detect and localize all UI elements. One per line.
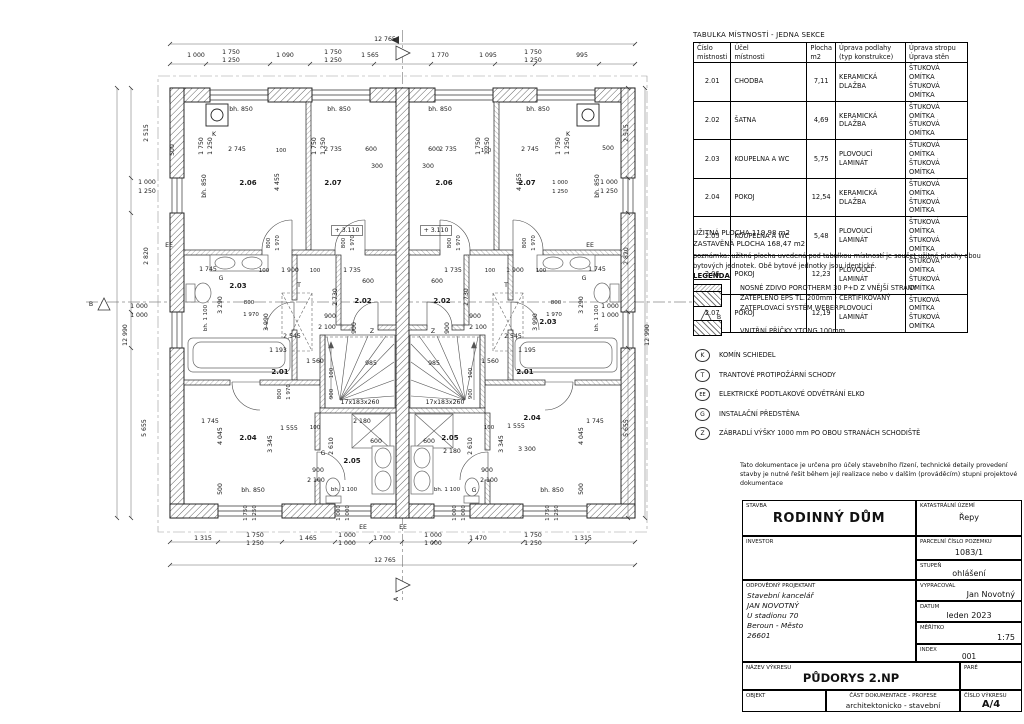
plan-label: 100 [329,367,335,378]
plan-label: T [503,282,508,289]
plan-label: 600 [428,146,440,153]
plan-label: 2 610 [467,437,474,455]
plan-label: 2.02 [433,297,450,305]
plan-label: 2 745 [521,146,539,153]
cast-value: architektonicko - stavební [827,701,959,710]
plan-label: 1 193 [269,347,287,354]
plan-label: 2.05 [343,457,360,465]
table-cell: 5,75 [807,140,836,179]
plan-label: 2.03 [539,318,556,326]
table-cell: 7,11 [807,63,836,102]
plan-label: 1 000 [424,540,442,547]
plan-label: 1 745 [588,266,606,273]
plan-label: 995 [576,52,588,59]
plan-label: 1 745 [199,266,217,273]
plan-label: 1 970 [275,235,281,251]
table-cell: ŠTUKOVÁ OMÍTKA ŠTUKOVÁ OMÍTKA [906,63,968,102]
legend-symbol-z-icon: Z [695,427,710,440]
plan-label: EE [165,242,173,249]
plan-label: 2 820 [143,247,150,265]
plan-label: G [219,275,224,282]
plan-label: bh. 850 [327,106,351,113]
plan-label: 100 [484,425,495,431]
plan-label: 1 750 [246,532,264,539]
titleblock-cell-parcela: PARCELNÍ ČÍSLO POZEMKU 1083/1 [916,536,1022,560]
plan-label: 1 560 [306,358,324,365]
plan-label: 1 750 [524,49,542,56]
plan-label: Z [370,328,374,335]
plan-label: 12 765 [374,557,396,564]
plan-label: 2 545 [504,333,522,340]
plan-label: 1 700 [373,535,391,542]
plan-label: 2 180 [353,418,371,425]
room-table-header-cell: Účel místnosti [731,43,807,63]
plan-label: 900 [481,467,493,474]
plan-label: 2.05 [441,434,458,442]
plan-label: 500 [578,483,585,495]
plan-label: 12 765 [374,36,396,43]
plan-label: 300 [422,163,434,170]
table-cell: 4,69 [807,101,836,140]
room-table-title: TABULKA MÍSTNOSTÍ - JEDNA SEKCE [693,31,825,39]
plan-label: 1 250 [222,57,240,64]
plan-label: 1 000 [601,312,619,319]
table-cell: KERAMICKÁ DLAŽBA [836,178,906,217]
plan-label: 1 250 [252,505,258,521]
table-cell: KERAMICKÁ DLAŽBA [836,101,906,140]
plan-label: 3 300 [518,446,536,453]
titleblock-cell-meritko: MĚŘÍTKO 1:75 [916,622,1022,644]
titleblock-cell-nazev: NÁZEV VÝKRESU PŮDORYS 2.NP [742,662,960,690]
plan-label: 1 315 [194,535,212,542]
table-cell: POKOJ [731,178,807,217]
plan-label: 100 [468,367,474,378]
plan-label: 2 730 [463,288,470,306]
plan-label: 1 000 [552,180,568,186]
plan-label: 2.01 [271,368,288,376]
plan-label: 900 [351,322,358,334]
plan-label: B [89,301,93,308]
plan-label: 2.03 [229,282,246,290]
loadbearing-wall-swatch [693,284,722,307]
plan-label: 1 095 [479,52,497,59]
titleblock-cell-vypracoval: VYPRACOVAL Jan Novotný [916,580,1022,601]
plan-label: 1 970 [546,312,562,318]
plan-label: 1 250 [552,189,568,195]
title-block: STAVBA RODINNÝ DŮM KATASTRÁLNÍ ÚZEMÍ Řep… [742,500,1022,712]
plan-label: + 3.110 [424,227,449,234]
plan-label: 1 000 [187,52,205,59]
plan-label: Z [431,328,435,335]
table-cell: ŠTUKOVÁ OMÍTKA ŠTUKOVÁ OMÍTKA [906,101,968,140]
plan-label: 1 315 [574,535,592,542]
legend-symbol-t-icon: T [695,369,710,382]
table-row: 2.03KOUPELNA A WC5,75PLOVOUCÍ LAMINÁTŠTU… [694,140,968,179]
plan-label: 1 000 [345,505,351,521]
plan-label: 800 [522,237,528,248]
plan-label: 900 [469,313,481,320]
room-table-header: Číslo místnostiÚčel místnostiPlocha m2Úp… [694,43,968,63]
plan-label: 2 100 [480,477,498,484]
drawing-sheet: { "table": { "title": "TABULKA MÍSTNOSTÍ… [0,0,1024,724]
plan-label: 1 250 [324,57,342,64]
table-cell: 2.01 [694,63,731,102]
plan-label: 1 250 [564,137,571,155]
party-wall [396,88,409,518]
plan-label: 800 [244,300,255,306]
plan-label: 300 [371,163,383,170]
titleblock-cell-cast: ČÁST DOKUMENTACE - PROFESE architektonic… [826,690,960,712]
plan-label: 3 290 [217,296,224,314]
plan-label: 500 [602,145,614,152]
table-cell: ŠTUKOVÁ OMÍTKA ŠTUKOVÁ OMÍTKA [906,140,968,179]
table-cell: PLOVOUCÍ LAMINÁT [836,217,906,256]
plan-label: 3 990 [532,313,539,331]
plan-label: 1 555 [507,423,525,430]
index-value: 001 [917,652,1021,661]
datum-label: DATUM [920,604,939,610]
plan-label: 4 045 [578,427,585,445]
plan-label: 1 970 [531,235,537,251]
table-cell: CHODBA [731,63,807,102]
plan-label: 1 970 [286,384,292,400]
stavba-label: STAVBA [746,503,767,509]
plan-label: 1 000 [138,179,156,186]
plan-label: bh. 850 [241,487,265,494]
legend-symbol-text: ZÁBRADLÍ VÝŠKY 1000 mm PO OBOU STRANÁCH … [719,429,920,437]
plan-label: 100 [259,268,270,274]
plan-label: bh. 850 [526,106,550,113]
plan-label: 1 000 [424,532,442,539]
objekt-label: OBJEKT [746,693,765,699]
plan-label: 2.07 [518,179,535,187]
table-cell: ŠTUKOVÁ OMÍTKA ŠTUKOVÁ OMÍTKA [906,217,968,256]
plan-label: 2 735 [439,146,457,153]
room-table-header-cell: Úprava podlahy (typ konstrukce) [836,43,906,63]
built-area: ZASTAVĚNÁ PLOCHA 168,47 m2 [693,239,805,250]
plan-label: 2.02 [354,297,371,305]
plan-label: 1 000 [452,505,458,521]
vypracoval-value: Jan Novotný [967,590,1015,599]
stavba-value: RODINNÝ DŮM [743,511,915,526]
plan-label: 2.04 [523,414,540,422]
plan-label: 100 [276,148,287,154]
plan-label: 1 000 [130,312,148,319]
projektant-value: Stavební kancelář JAN NOVOTNÝ U stadionu… [747,591,915,641]
plan-label: 2 515 [623,124,630,142]
plan-label: 1 250 [524,540,542,547]
table-cell: KERAMICKÁ DLAŽBA [836,63,906,102]
plan-label: 1 970 [350,235,356,251]
titleblock-cell-stupen: STUPEŇ ohlášení [916,560,1022,580]
plan-label: 2 545 [283,333,301,340]
plan-label: 3 990 [263,313,270,331]
plan-label: 2.06 [435,179,452,187]
datum-value: leden 2023 [917,611,1021,620]
plan-label: 1 900 [281,267,299,274]
table-cell: ŠTUKOVÁ OMÍTKA ŠTUKOVÁ OMÍTKA [906,178,968,217]
plan-label: 1 560 [481,358,499,365]
titleblock-cell-datum: DATUM leden 2023 [916,601,1022,622]
legend-symbol-g-icon: G [695,408,710,421]
note-text: poznámka: užitná plocha uvedená pod tabu… [693,252,981,271]
legend-wall1-label: NOSNÉ ZDIVO POROTHERM 30 P+D Z VNĚJŠÍ ST… [740,284,917,314]
plan-label: 1 465 [299,535,317,542]
plan-label: 1 750 [198,137,205,155]
plan-label: 3 290 [578,296,585,314]
plan-label: 2 610 [328,437,335,455]
meritko-value: 1:75 [997,633,1015,642]
plan-label: 100 [485,268,496,274]
meritko-label: MĚŘÍTKO [920,625,944,631]
plan-label: 600 [365,146,377,153]
plan-label: T [296,282,301,289]
plan-label: 900 [312,467,324,474]
plan-label: EE [399,524,407,531]
plan-label: 2 100 [307,477,325,484]
plan-label: 800 [277,388,283,399]
plan-label: 1 750 [545,505,551,521]
plan-label: 1 000 [338,540,356,547]
plan-label: 800 [447,237,453,248]
titleblock-cell-objekt: OBJEKT [742,690,826,712]
table-cell: 2.04 [694,178,731,217]
plan-label: bh. 1 100 [203,304,209,331]
legend-symbol-row: ZZÁBRADLÍ VÝŠKY 1000 mm PO OBOU STRANÁCH… [693,425,1013,445]
plan-label: bh. 1 100 [434,487,461,493]
legend-symbol-row: KKOMÍN SCHIEDEL [693,347,1013,367]
plan-label: 1 250 [207,137,214,155]
plan-label: 1 250 [600,188,618,195]
plan-label: 800 [341,237,347,248]
legend-wall2-label: VNITŘNÍ PŘÍČKY YTONG 100mm [740,327,845,335]
plan-label: 1 250 [524,57,542,64]
plan-label: 4 455 [274,173,281,191]
plan-label: 800 [551,300,562,306]
plan-label: EE [359,524,367,531]
plan-label: 1 195 [518,347,536,354]
table-cell: 5,48 [807,217,836,256]
plan-label: 600 [370,438,382,445]
investor-label: INVESTOR [746,539,773,545]
plan-label: 17x183x260 [341,399,380,406]
parcela-value: 1083/1 [917,548,1021,557]
plan-label: 500 [217,483,224,495]
plan-label: 1 750 [222,49,240,56]
area-summary: UŽITNÁ PLOCHA 119,98 m2 ZASTAVĚNÁ PLOCHA… [693,228,805,249]
table-cell: ŠATNA [731,101,807,140]
legend-symbol-text: ELEKTRICKÉ PODTLAKOVÉ ODVĚTRÁNÍ ELKO [719,390,865,398]
titleblock-cell-projektant: ODPOVĚDNÝ PROJEKTANT Stavební kancelář J… [742,580,916,662]
plan-label: 1 000 [336,505,342,521]
titleblock-cell-stavba: STAVBA RODINNÝ DŮM [742,500,916,536]
plan-label: EE [586,242,594,249]
plan-label: 600 [362,278,374,285]
plan-label: 1 750 [555,137,562,155]
room-table-header-cell: Úprava stropu Úprava stěn [906,43,968,63]
ku-label: KATASTRÁLNÍ ÚZEMÍ [920,503,975,509]
plan-label: 2 180 [443,448,461,455]
table-row: 2.01CHODBA7,11KERAMICKÁ DLAŽBAŠTUKOVÁ OM… [694,63,968,102]
plan-label: 2 515 [143,124,150,142]
plan-label: 1 000 [130,303,148,310]
plan-label: 1 745 [586,418,604,425]
table-row: 2.04POKOJ12,54KERAMICKÁ DLAŽBAŠTUKOVÁ OM… [694,178,968,217]
plan-label: 1 000 [461,505,467,521]
plan-label: 1 090 [276,52,294,59]
plan-label: 100 [310,425,321,431]
plan-label: 3 345 [498,435,505,453]
plan-label: bh. 850 [229,106,253,113]
plan-label: 2.04 [239,434,256,442]
legend-symbol-row: TTRANTOVÉ PROTIPOŽÁRNÍ SCHODY [693,367,1013,387]
plan-label: bh. 850 [540,487,564,494]
legend-symbol-row: GINSTALAČNÍ PŘEDSTĚNA [693,406,1013,426]
plan-label: A [393,596,400,601]
plan-label: 100 [481,148,492,154]
parcela-label: PARCELNÍ ČÍSLO POZEMKU [920,539,992,545]
pare-label: PARÉ [964,665,978,671]
plan-label: 2.01 [516,368,533,376]
plan-label: 2 820 [623,247,630,265]
plan-label: 2 730 [332,288,339,306]
plan-label: 1 770 [431,52,449,59]
plan-label: G [321,450,326,457]
plan-label: 1 000 [600,179,618,186]
plan-label: 2 735 [324,146,342,153]
table-cell: 12,54 [807,178,836,217]
table-row: 2.02ŠATNA4,69KERAMICKÁ DLAŽBAŠTUKOVÁ OMÍ… [694,101,968,140]
plan-label: 1 750 [311,137,318,155]
plan-label: G [472,487,477,494]
room-table-header-cell: Číslo místnosti [694,43,731,63]
vypracoval-label: VYPRACOVAL [920,583,955,589]
titleblock-cell-index: INDEX 001 [916,644,1022,662]
legend-symbols: KKOMÍN SCHIEDELTTRANTOVÉ PROTIPOŽÁRNÍ SC… [693,347,1013,445]
plan-label: 900 [329,388,335,399]
table-cell: 2.03 [694,140,731,179]
plan-label: 900 [444,322,451,334]
plan-label: 1 470 [469,535,487,542]
table-cell: PLOVOUCÍ LAMINÁT [836,140,906,179]
plan-label: 2 100 [469,324,487,331]
plan-label: G [582,275,587,282]
nazev-value: PŮDORYS 2.NP [743,671,959,685]
plan-label: 1 900 [506,267,524,274]
disclaimer-text: Tato dokumentace je určena pro účely sta… [740,461,1021,488]
ku-value: Řepy [917,513,1021,522]
plan-label: 985 [428,360,440,367]
plan-label: bh. 850 [201,174,208,198]
table-cell: 2.02 [694,101,731,140]
plan-label: 985 [365,360,377,367]
plan-label: + 3.110 [335,227,360,234]
legend-title: LEGENDA [693,272,730,280]
plan-label: 900 [324,313,336,320]
plan-label: 1 970 [243,312,259,318]
table-cell: KOUPELNA A WC [731,140,807,179]
plan-label: 5 655 [141,419,148,437]
plan-label: K [212,131,217,138]
legend-symbol-text: KOMÍN SCHIEDEL [719,351,776,359]
titleblock-cell-ku: KATASTRÁLNÍ ÚZEMÍ Řepy [916,500,1022,536]
plan-label: 4 045 [217,427,224,445]
legend-symbol-k-icon: K [695,349,710,362]
titleblock-cell-pare: PARÉ [960,662,1022,690]
plan-label: 12 990 [122,324,129,346]
plan-label: 1 250 [554,505,560,521]
plan-label: 2 100 [318,324,336,331]
plan-label: 2 745 [228,146,246,153]
plan-label: 1 250 [138,188,156,195]
usable-area: UŽITNÁ PLOCHA 119,98 m2 [693,228,805,239]
plan-label: 500 [169,144,176,156]
cast-label: ČÁST DOKUMENTACE - PROFESE [827,693,959,699]
plan-label: 600 [423,438,435,445]
plan-label: 2.06 [239,179,256,187]
plan-label: 1 250 [246,540,264,547]
titleblock-cell-cislo: ČÍSLO VÝKRESU A/4 [960,690,1022,712]
room-table-header-cell: Plocha m2 [807,43,836,63]
cislo-value: A/4 [961,699,1021,710]
plan-label: bh. 850 [428,106,452,113]
plan-label: 100 [310,268,321,274]
plan-label: 1 970 [456,235,462,251]
plan-label: bh. 1 100 [331,487,358,493]
plan-label: 1 750 [524,532,542,539]
plan-label: 2.07 [324,179,341,187]
legend-symbol-text: TRANTOVÉ PROTIPOŽÁRNÍ SCHODY [719,371,836,379]
stupen-value: ohlášení [917,569,1021,578]
plan-label: 900 [468,388,474,399]
plan-label: 100 [536,268,547,274]
plan-label: 17x183x260 [426,399,465,406]
titleblock-cell-investor: INVESTOR [742,536,916,580]
legend-symbol-text: INSTALAČNÍ PŘEDSTĚNA [719,410,800,418]
legend-symbol-ee-icon: EE [695,388,710,401]
legend-symbol-row: EEELEKTRICKÉ PODTLAKOVÉ ODVĚTRÁNÍ ELKO [693,386,1013,406]
plan-label: 1 000 [338,532,356,539]
plan-label: 1 750 [243,505,249,521]
plan-label: 1 555 [280,425,298,432]
plan-label: 1 735 [444,267,462,274]
plan-label: 1 735 [343,267,361,274]
plan-label: 5 655 [623,419,630,437]
plan-label: 1 750 [324,49,342,56]
plan-label: 12 990 [644,324,651,346]
plan-label: bh. 1 100 [594,304,600,331]
plan-label: K [566,131,571,138]
plan-label: 1 745 [201,418,219,425]
projektant-label: ODPOVĚDNÝ PROJEKTANT [746,583,815,589]
plan-label: 1 000 [601,303,619,310]
plan-label: 800 [266,237,272,248]
plan-label: 1 565 [361,52,379,59]
plan-label: 600 [431,278,443,285]
plan-label: 3 345 [267,435,274,453]
partition-wall-swatch [693,320,722,336]
